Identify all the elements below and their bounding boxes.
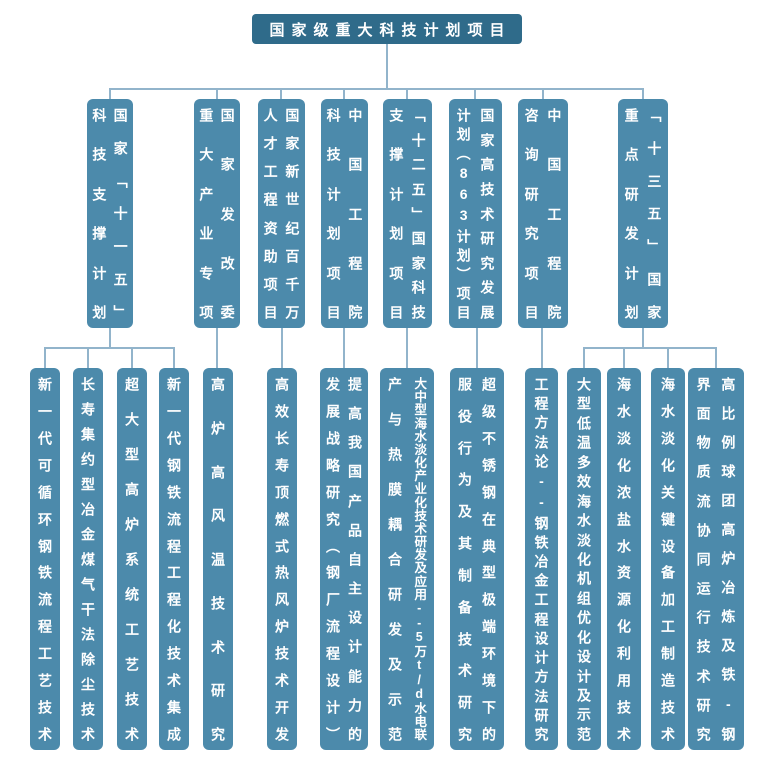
node-text-col: 大中型海水淡化产业化技术研发及应用--5万t/d水电联 [409,377,429,741]
node-text-col: 提高我国产品自主设计能力的 [345,377,365,741]
connector-line [583,347,717,349]
tree-root-node: 国家级重大科技计划项目 [252,14,522,44]
node-text-col: 大型低温多效海水淡化机组优化设计及示范 [574,377,594,741]
node-text-col: 界面物质流协同运行技术研究 [694,377,714,741]
node-text-col: 服役行为及其制备技术研究 [455,377,475,741]
tree-node-leaf: 长寿集约型冶金煤气干法除尘技术 [73,368,103,750]
tree-node-branch-5: 「十二五」国家科技 支撑计划项目 [383,99,432,328]
node-text-col: 国家高技术研究发展 [477,108,497,319]
node-text-col: 国家新世纪百千万 [282,108,302,319]
node-text-col: 发展战略研究（钢厂流程设计） [323,377,343,741]
connector-line [343,328,345,368]
tree-node-leaf: 海水淡化浓盐水资源化利用技术 [607,368,641,750]
node-text-col: 中国工程院 [544,108,564,319]
node-text-col: 超大型高炉系统工艺技术 [122,377,142,741]
connector-line [642,328,644,348]
node-text-col: 「十二五」国家科技 [409,108,429,319]
tree-node-branch-8: 「十三五」国家 重点研发计划 [618,99,668,328]
connector-line [131,347,133,368]
node-text-col: 中国工程院 [345,108,365,319]
root-label: 国家级重大科技计划项目 [262,19,511,40]
connector-line [667,347,669,368]
node-text-col: 长寿集约型冶金煤气干法除尘技术 [78,377,98,741]
tree-node-branch-2: 国家发改委 重大产业专项 [194,99,240,328]
node-text-col: 高效长寿顶燃式热风炉技术开发 [272,377,292,741]
node-text-col: 「十三五」国家 [644,108,664,319]
node-text-col: 产与热膜耦合研发及示范 [385,377,405,741]
tree-node-leaf: 高效长寿顶燃式热风炉技术开发 [267,368,297,750]
node-text-col: 海水淡化浓盐水资源化利用技术 [614,377,634,741]
connector-line [216,328,218,368]
connector-line [715,347,717,368]
tree-node-leaf: 高比例球团高炉冶炼及铁-钢 界面物质流协同运行技术研究 [688,368,744,750]
node-text-col: 人才工程资助项目 [261,108,281,319]
tree-node-leaf: 高炉高风温技术研究 [203,368,233,750]
node-text-col: 海水淡化关键设备加工制造技术 [658,377,678,741]
node-text-col: 计划（863计划）项目 [454,108,474,319]
node-text-col: 新一代可循环钢铁流程工艺技术 [35,377,55,741]
connector-line [386,44,388,88]
node-text-col: 国家发改委 [218,108,238,319]
connector-line [281,328,283,368]
node-text-col: 科技计划项目 [324,108,344,319]
node-text-col: 国家「十一五」 [111,108,131,319]
connector-line [173,347,175,368]
connector-line [44,347,46,368]
node-text-col: 超级不锈钢在典型极端环境下的 [479,377,499,741]
node-text-col: 科技支撑计划 [89,108,109,319]
connector-line [109,88,644,90]
connector-line [44,347,175,349]
node-text-col: 支撑计划项目 [386,108,406,319]
node-text-col: 工程方法论--钢铁冶金工程设计方法研究 [532,377,552,741]
tree-node-branch-3: 国家新世纪百千万 人才工程资助项目 [258,99,305,328]
connector-line [541,328,543,368]
tree-node-leaf: 提高我国产品自主设计能力的 发展战略研究（钢厂流程设计） [320,368,368,750]
tree-node-leaf: 超级不锈钢在典型极端环境下的 服役行为及其制备技术研究 [450,368,504,750]
connector-line [583,347,585,368]
node-text-col: 重点研发计划 [622,108,642,319]
tree-node-branch-1: 国家「十一五」 科技支撑计划 [87,99,133,328]
node-text-col: 新一代钢铁流程工程化技术集成 [164,377,184,741]
node-text-col: 重大产业专项 [196,108,216,319]
tree-node-leaf: 海水淡化关键设备加工制造技术 [651,368,685,750]
tree-node-leaf: 超大型高炉系统工艺技术 [117,368,147,750]
node-text-col: 咨询研究项目 [522,108,542,319]
connector-line [87,347,89,368]
connector-line [109,328,111,348]
tree-node-leaf: 大型低温多效海水淡化机组优化设计及示范 [567,368,601,750]
tree-node-leaf: 新一代可循环钢铁流程工艺技术 [30,368,60,750]
tree-node-leaf: 新一代钢铁流程工程化技术集成 [159,368,189,750]
tree-node-branch-4: 中国工程院 科技计划项目 [321,99,368,328]
connector-line [623,347,625,368]
tree-node-branch-6: 国家高技术研究发展 计划（863计划）项目 [449,99,502,328]
connector-line [476,328,478,368]
node-text-col: 高炉高风温技术研究 [208,377,228,741]
tree-node-leaf: 大中型海水淡化产业化技术研发及应用--5万t/d水电联 产与热膜耦合研发及示范 [380,368,434,750]
node-text-col: 高比例球团高炉冶炼及铁-钢 [718,377,738,741]
org-chart: 国家级重大科技计划项目 国家「十一五」 科技支撑计划 国家发改委 重大产业专项 … [0,0,773,772]
connector-line [406,328,408,368]
tree-node-branch-7: 中国工程院 咨询研究项目 [518,99,568,328]
tree-node-leaf: 工程方法论--钢铁冶金工程设计方法研究 [525,368,558,750]
